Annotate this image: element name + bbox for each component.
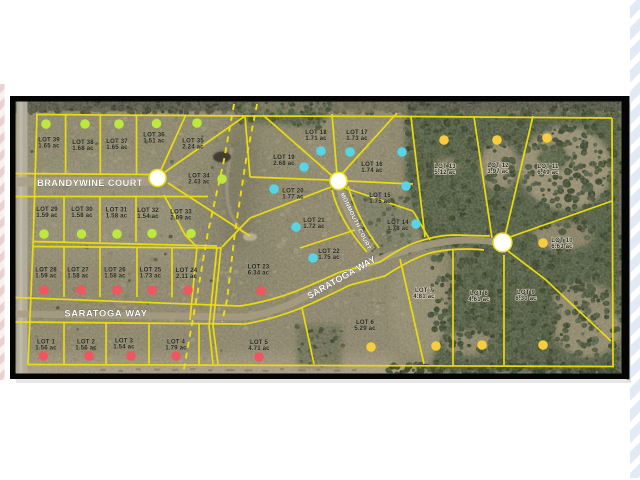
svg-text:4.71 ac: 4.71 ac: [248, 345, 270, 352]
svg-text:5.12 ac: 5.12 ac: [434, 169, 456, 176]
svg-text:2.68 ac: 2.68 ac: [273, 160, 295, 167]
svg-text:BRANDYWINE COURT: BRANDYWINE COURT: [37, 178, 143, 188]
svg-text:1.75 ac: 1.75 ac: [318, 254, 340, 261]
svg-text:2.24 ac: 2.24 ac: [182, 144, 204, 151]
svg-text:SARATOGA WAY: SARATOGA WAY: [64, 308, 147, 319]
svg-text:1.58 ac: 1.58 ac: [104, 273, 126, 280]
svg-text:1.58 ac: 1.58 ac: [106, 213, 128, 220]
svg-text:6.30 ac: 6.30 ac: [515, 295, 537, 302]
svg-text:1.56 ac: 1.56 ac: [35, 345, 57, 352]
svg-text:4.61 ac: 4.61 ac: [468, 296, 490, 303]
svg-text:1.54 ac: 1.54 ac: [113, 344, 135, 351]
svg-text:1.59 ac: 1.59 ac: [36, 212, 58, 219]
svg-text:1.74 ac: 1.74 ac: [361, 167, 383, 174]
svg-text:1.51 ac: 1.51 ac: [143, 138, 165, 145]
svg-text:1.73 ac: 1.73 ac: [346, 135, 368, 142]
svg-text:1.59 ac: 1.59 ac: [35, 273, 57, 280]
svg-text:2.43 ac: 2.43 ac: [188, 179, 210, 186]
svg-text:1.77 ac: 1.77 ac: [282, 194, 304, 201]
svg-text:1.73 ac: 1.73 ac: [140, 273, 162, 280]
svg-text:1.71 ac: 1.71 ac: [305, 135, 327, 142]
svg-text:1.68 ac: 1.68 ac: [72, 145, 94, 152]
svg-text:5.29 ac: 5.29 ac: [354, 325, 376, 332]
svg-text:1.58 ac: 1.58 ac: [67, 273, 89, 280]
svg-text:3.97 ac: 3.97 ac: [487, 168, 509, 175]
svg-text:4.81 ac: 4.81 ac: [413, 293, 435, 300]
svg-text:6.63 ac: 6.63 ac: [551, 243, 573, 250]
svg-text:1.65 ac: 1.65 ac: [38, 143, 60, 150]
svg-text:1.65 ac: 1.65 ac: [106, 144, 128, 151]
svg-text:1.72 ac: 1.72 ac: [303, 223, 325, 230]
svg-text:1.54 ac: 1.54 ac: [137, 213, 159, 220]
svg-text:1.79 ac: 1.79 ac: [165, 345, 187, 352]
svg-text:2.11 ac: 2.11 ac: [176, 273, 198, 280]
svg-text:6.49 ac: 6.49 ac: [537, 169, 559, 176]
svg-text:1.56 ac: 1.56 ac: [75, 345, 97, 352]
svg-text:6.34 ac: 6.34 ac: [248, 270, 270, 277]
svg-text:1.75 ac: 1.75 ac: [369, 198, 391, 205]
svg-text:1.78 ac: 1.78 ac: [387, 225, 409, 232]
svg-text:2.09 ac: 2.09 ac: [170, 215, 192, 222]
svg-text:1.58 ac: 1.58 ac: [71, 212, 93, 219]
